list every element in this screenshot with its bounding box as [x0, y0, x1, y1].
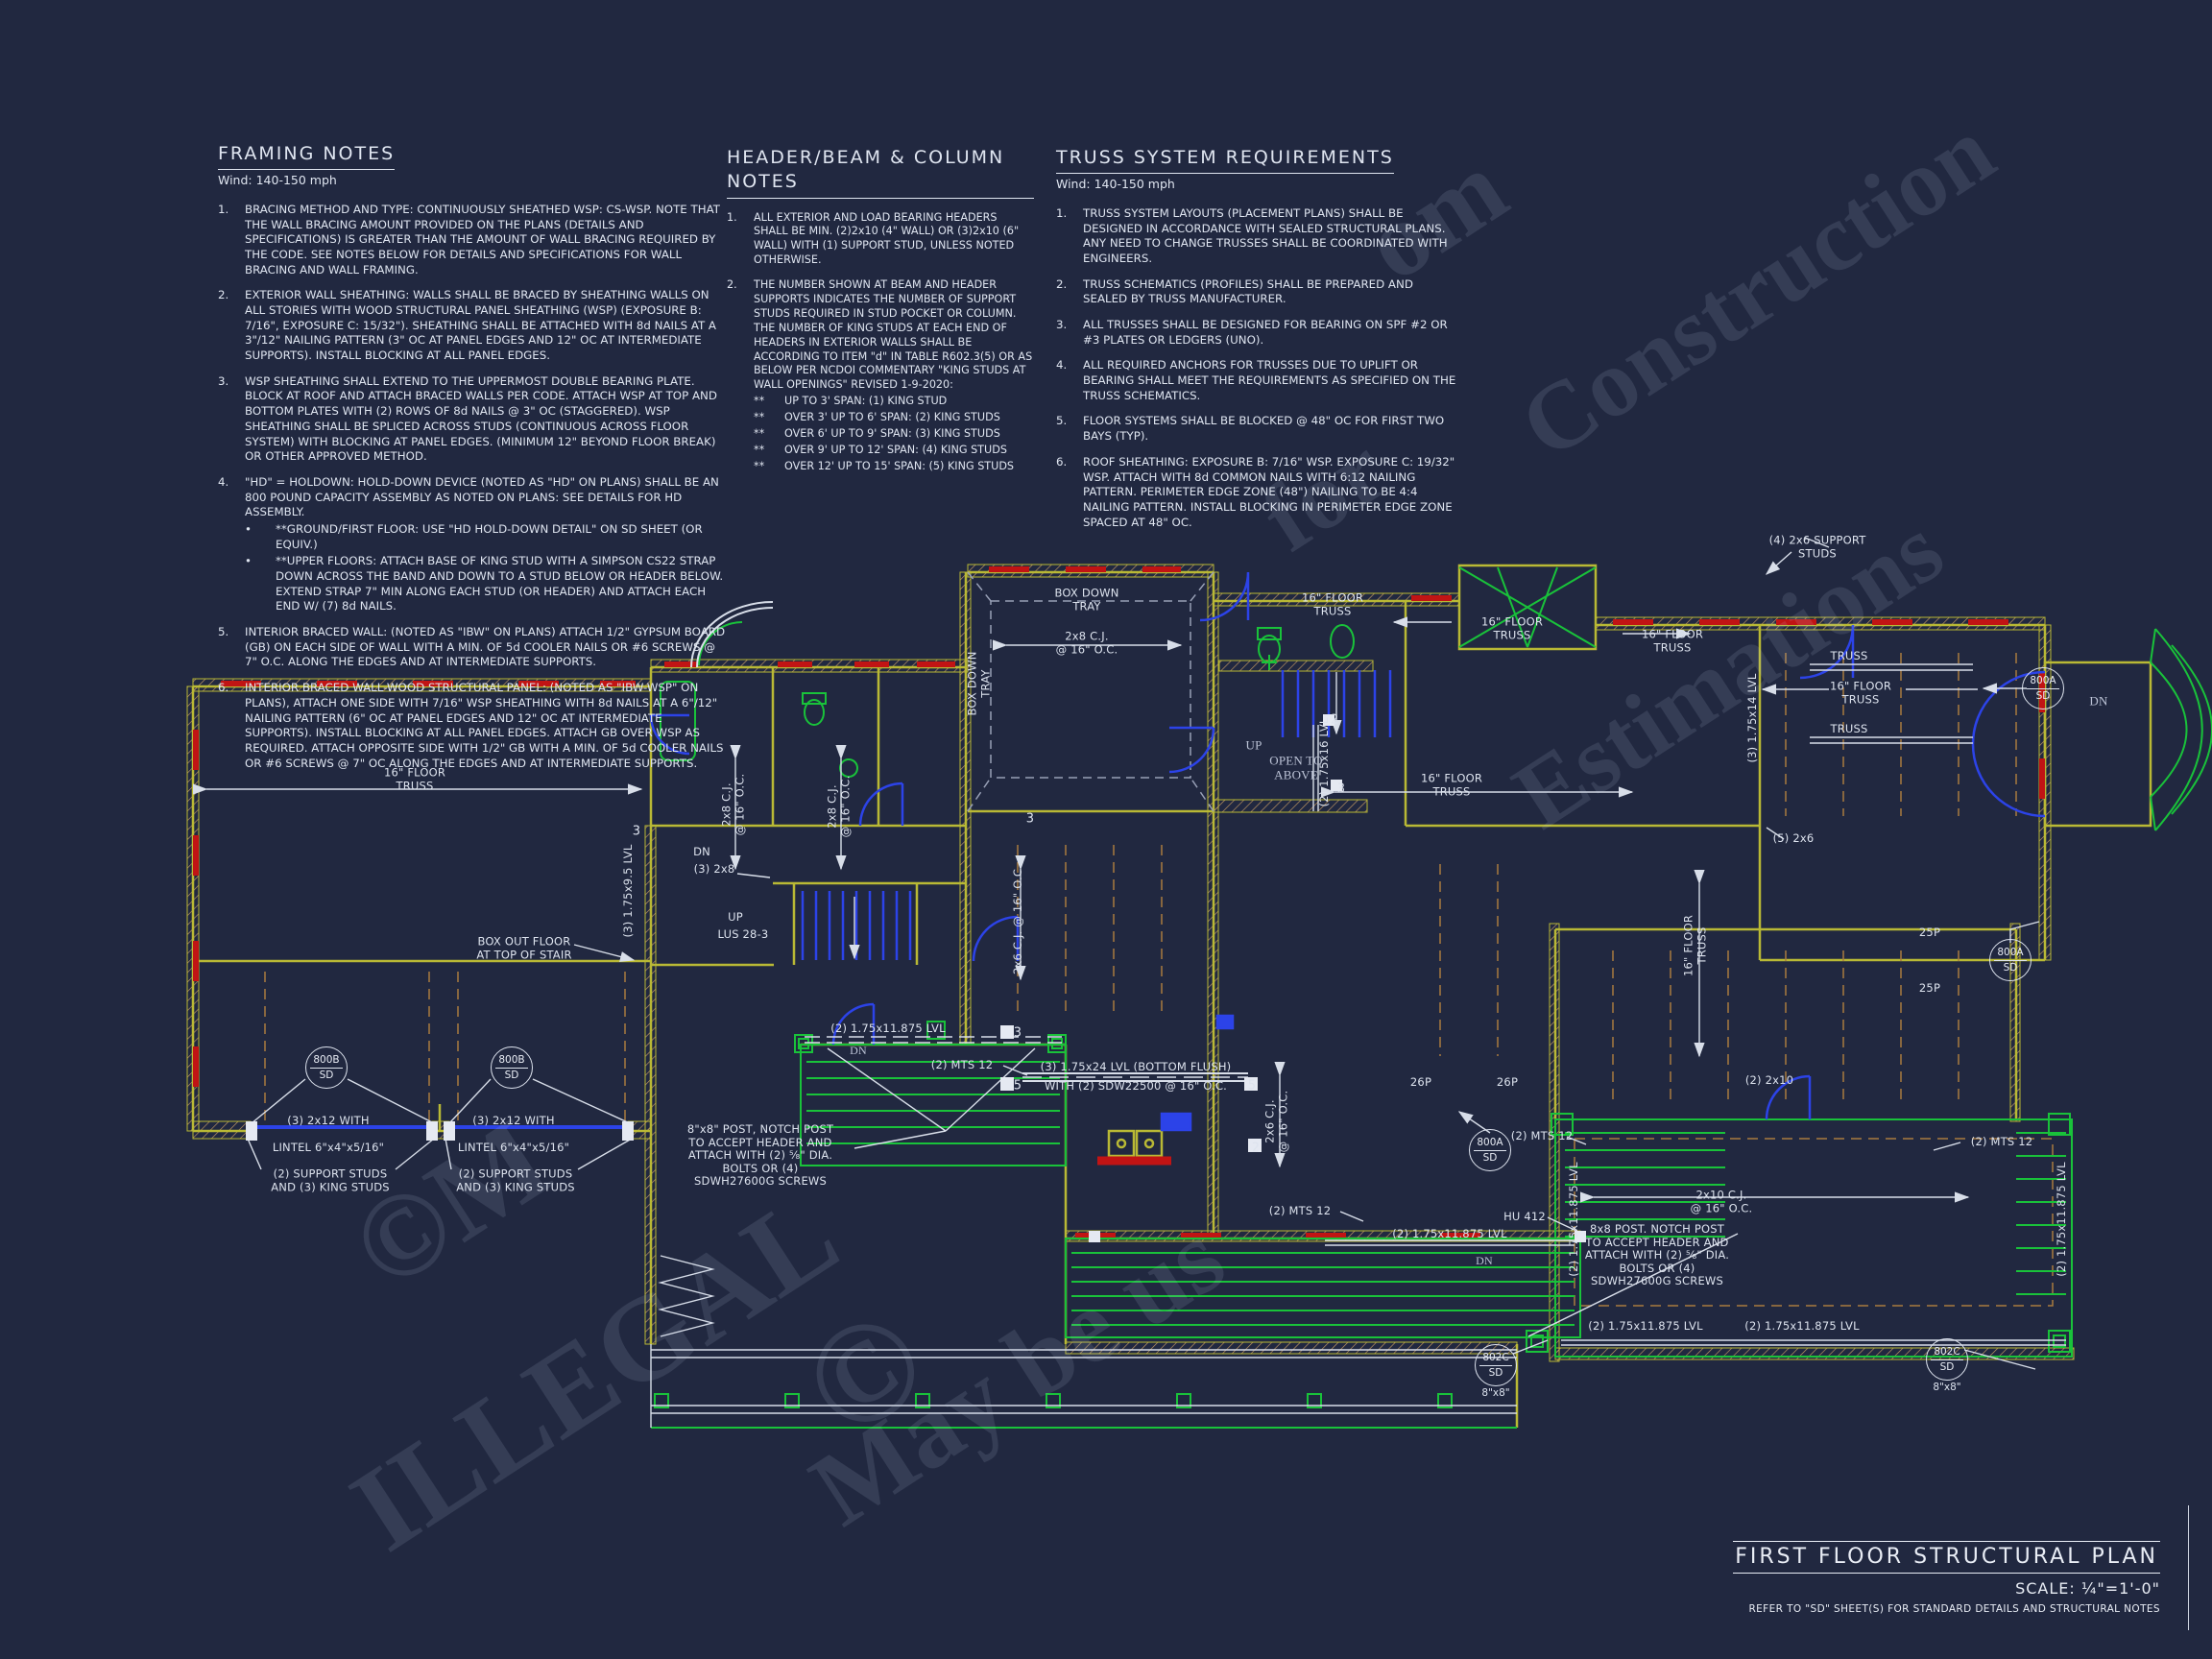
note-sub-item: •**GROUND/FIRST FLOOR: USE "HD HOLD-DOWN… [245, 522, 727, 552]
framing-notes-wind: Wind: 140-150 mph [218, 173, 727, 189]
note-item: 2.THE NUMBER SHOWN AT BEAM AND HEADER SU… [727, 278, 1034, 474]
note-item: 1.TRUSS SYSTEM LAYOUTS (PLACEMENT PLANS)… [1056, 206, 1459, 267]
sheet-scale: SCALE: ¼"=1'-0" [1733, 1579, 2160, 1598]
note-sub-item: **OVER 6' UP TO 9' SPAN: (3) KING STUDS [754, 427, 1034, 442]
truss-notes-title: TRUSS SYSTEM REQUIREMENTS [1056, 146, 1394, 174]
blueprint-sheet: omConstructionforEstimations©MILLEGAL©Ma… [0, 0, 2212, 1659]
note-item: 4.ALL REQUIRED ANCHORS FOR TRUSSES DUE T… [1056, 358, 1459, 403]
deck-porch-green [651, 567, 2212, 1428]
tray-ceiling-dashed [968, 572, 1214, 811]
detail-bubble: 800ASD [2022, 667, 2064, 709]
detail-bubble: 800ASD [1469, 1129, 1511, 1171]
sheet-note: REFER TO "SD" SHEET(S) FOR STANDARD DETA… [1733, 1603, 2160, 1615]
truss-notes-wind: Wind: 140-150 mph [1056, 177, 1459, 193]
sheet-title: FIRST FLOOR STRUCTURAL PLAN [1733, 1541, 2160, 1574]
note-sub-item: **OVER 12' UP TO 15' SPAN: (5) KING STUD… [754, 460, 1034, 474]
framing-notes: FRAMING NOTES Wind: 140-150 mph 1.BRACIN… [218, 142, 727, 781]
detail-bubble: 800BSD [491, 1046, 533, 1089]
note-item: 6.ROOF SHEATHING: EXPOSURE B: 7/16" WSP.… [1056, 455, 1459, 530]
note-sub-item: **OVER 3' UP TO 6' SPAN: (2) KING STUDS [754, 411, 1034, 425]
bubble-sub-label: 8"x8" [1933, 1382, 1960, 1393]
stud-pockets [246, 714, 1586, 1242]
note-item: 1.BRACING METHOD AND TYPE: CONTINUOUSLY … [218, 203, 727, 277]
note-item: 2.EXTERIOR WALL SHEATHING: WALLS SHALL B… [218, 288, 727, 363]
detail-bubble: 800ASD [1989, 939, 2032, 981]
note-sub-item: •**UPPER FLOORS: ATTACH BASE OF KING STU… [245, 554, 727, 614]
detail-bubble: 802CSD8"x8" [1926, 1338, 1968, 1381]
bubble-sub-label: 8"x8" [1481, 1387, 1509, 1399]
note-item: 2.TRUSS SCHEMATICS (PROFILES) SHALL BE P… [1056, 277, 1459, 307]
truss-notes: TRUSS SYSTEM REQUIREMENTS Wind: 140-150 … [1056, 146, 1459, 541]
title-block: FIRST FLOOR STRUCTURAL PLAN SCALE: ¼"=1'… [1733, 1541, 2160, 1615]
note-sub-item: **OVER 9' UP TO 12' SPAN: (4) KING STUDS [754, 444, 1034, 458]
detail-bubble: 802CSD8"x8" [1475, 1344, 1517, 1386]
note-item: 6.INTERIOR BRACED WALL-WOOD STRUCTURAL P… [218, 681, 727, 771]
note-item: 1.ALL EXTERIOR AND LOAD BEARING HEADERS … [727, 211, 1034, 269]
detail-bubble: 800BSD [305, 1046, 348, 1089]
note-item: 3.WSP SHEATHING SHALL EXTEND TO THE UPPE… [218, 374, 727, 465]
framing-notes-title: FRAMING NOTES [218, 142, 395, 170]
header-beam-notes: HEADER/BEAM & COLUMN NOTES 1.ALL EXTERIO… [727, 146, 1034, 485]
note-item: 3.ALL TRUSSES SHALL BE DESIGNED FOR BEAR… [1056, 318, 1459, 348]
note-item: 5.INTERIOR BRACED WALL: (NOTED AS "IBW" … [218, 625, 727, 670]
header-beam-notes-title: HEADER/BEAM & COLUMN NOTES [727, 146, 1034, 199]
note-item: 4."HD" = HOLDOWN: HOLD-DOWN DEVICE (NOTE… [218, 475, 727, 614]
note-item: 5.FLOOR SYSTEMS SHALL BE BLOCKED @ 48" O… [1056, 414, 1459, 444]
title-block-rule [2188, 1505, 2189, 1630]
note-sub-item: **UP TO 3' SPAN: (1) KING STUD [754, 395, 1034, 409]
